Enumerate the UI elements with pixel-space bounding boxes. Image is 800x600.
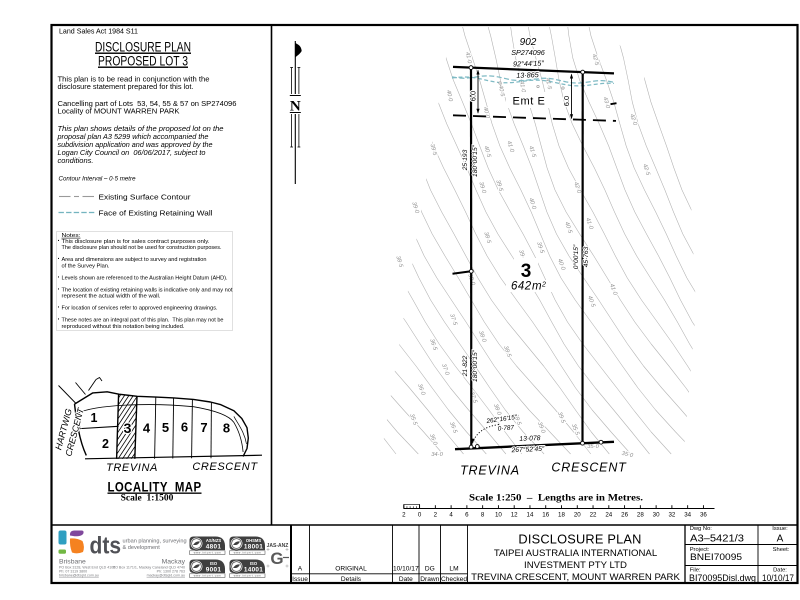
svg-text:10/10/17: 10/10/17 — [762, 573, 794, 584]
svg-text:36·5: 36·5 — [428, 338, 438, 352]
svg-text:35·0: 35·0 — [587, 444, 599, 450]
svg-text:Issue:: Issue: — [772, 526, 788, 532]
svg-text:Locality of MOUNT WARREN PARK: Locality of MOUNT WARREN PARK — [58, 109, 180, 116]
svg-text:ISO: ISO — [250, 561, 258, 566]
svg-text:·: · — [58, 317, 60, 324]
svg-text:39·5: 39·5 — [494, 179, 503, 193]
svg-text:10: 10 — [495, 512, 502, 519]
svg-text:32: 32 — [668, 512, 675, 519]
svg-text:mackay@dtsqld.com.au: mackay@dtsqld.com.au — [147, 574, 185, 578]
svg-text:2: 2 — [541, 282, 546, 289]
svg-text:25·193: 25·193 — [462, 149, 469, 171]
svg-text:28: 28 — [637, 512, 644, 519]
svg-text:642: 642 — [511, 281, 532, 293]
svg-text:38·5: 38·5 — [394, 255, 404, 269]
svg-text:Levels shown are referenced to: Levels shown are referenced to the Austr… — [62, 275, 228, 281]
svg-text:Notes:: Notes: — [62, 233, 81, 239]
svg-text:INVESTMENT PTY LTD: INVESTMENT PTY LTD — [524, 560, 627, 571]
svg-text:4: 4 — [449, 512, 453, 519]
svg-text:A: A — [298, 566, 303, 573]
svg-text:0·787: 0·787 — [497, 424, 514, 432]
svg-text:39·0: 39·0 — [536, 421, 546, 435]
svg-text:conditions.: conditions. — [58, 156, 94, 165]
svg-text:brisbane@dtsqld.com.au: brisbane@dtsqld.com.au — [59, 574, 99, 578]
svg-text:6: 6 — [465, 512, 469, 519]
svg-text:36·0: 36·0 — [428, 433, 438, 447]
svg-text:38·0: 38·0 — [492, 403, 502, 417]
svg-text:represent the actual width of: represent the actual width of the wall. — [62, 294, 161, 300]
svg-text:For location of services refer: For location of services refer to approv… — [62, 306, 218, 312]
svg-text:Existing Surface Contour: Existing Surface Contour — [99, 195, 192, 202]
svg-text:45·763: 45·763 — [583, 246, 590, 267]
svg-text:The location of existing retai: The location of existing retaining walls… — [62, 288, 233, 294]
svg-text:14: 14 — [527, 512, 534, 519]
svg-text:40·5: 40·5 — [586, 295, 596, 309]
svg-text:41·0: 41·0 — [608, 283, 618, 297]
svg-text:A3–5421/3: A3–5421/3 — [690, 534, 744, 545]
svg-text:AS/NZS: AS/NZS — [206, 538, 222, 543]
svg-text:8: 8 — [223, 421, 230, 436]
svg-text:Drawn: Drawn — [420, 576, 439, 583]
svg-text:39·0: 39·0 — [410, 201, 419, 215]
svg-text:12: 12 — [511, 512, 518, 519]
svg-text:40·5: 40·5 — [497, 85, 505, 98]
svg-text:2: 2 — [434, 512, 438, 519]
svg-text:37·0: 37·0 — [440, 363, 450, 377]
svg-text:38·5: 38·5 — [502, 345, 512, 359]
svg-text:0°00'15″: 0°00'15″ — [572, 244, 580, 269]
svg-text:This disclosure plan is for sa: This disclosure plan is for sales contra… — [62, 239, 210, 245]
svg-text:5: 5 — [162, 420, 169, 435]
svg-text:Scale 1:1500: Scale 1:1500 — [121, 494, 174, 504]
svg-text:TREVINA: TREVINA — [460, 464, 520, 478]
svg-text:41·0: 41·0 — [464, 51, 472, 64]
svg-text:41·5: 41·5 — [527, 145, 536, 159]
svg-text:BNEI70095: BNEI70095 — [690, 552, 742, 563]
svg-text:w w w . i n t c e r t . c o m: w w w . i n t c e r t . c o m — [234, 552, 261, 555]
svg-text:OHSMS: OHSMS — [246, 538, 262, 543]
svg-text:43·0: 43·0 — [602, 96, 611, 110]
svg-text:41·0: 41·0 — [584, 217, 594, 231]
svg-text:dts: dts — [90, 533, 122, 560]
svg-text:DG: DG — [425, 566, 435, 573]
svg-text:w w w . i n t c e r t . c o m: w w w . i n t c e r t . c o m — [194, 575, 221, 578]
svg-text:CRESCENT: CRESCENT — [551, 461, 627, 475]
svg-text:6.0: 6.0 — [469, 91, 478, 101]
svg-text:Date: Date — [399, 576, 413, 583]
svg-text:& development: & development — [123, 545, 161, 551]
svg-text:Details: Details — [341, 576, 362, 583]
svg-text:42·5: 42·5 — [641, 163, 651, 177]
svg-text:40·0: 40·0 — [556, 258, 566, 272]
svg-text:reproduced without this notati: reproduced without this notation being i… — [62, 324, 185, 330]
svg-text:6.0: 6.0 — [562, 96, 571, 106]
svg-text:21·822: 21·822 — [462, 355, 469, 377]
svg-text:of the Survey Plan.: of the Survey Plan. — [62, 263, 110, 269]
svg-text:A: A — [777, 534, 784, 545]
svg-text:w w w . i n t c e r t . c o m: w w w . i n t c e r t . c o m — [234, 575, 261, 578]
svg-text:41·0: 41·0 — [505, 140, 514, 154]
svg-text:26: 26 — [621, 512, 628, 519]
svg-text:2: 2 — [402, 512, 406, 519]
svg-text:Face of Existing Retaining Wal: Face of Existing Retaining Wall — [99, 211, 214, 218]
svg-text:BI70095Disl.dwg: BI70095Disl.dwg — [689, 573, 756, 584]
svg-text:40·0: 40·0 — [445, 89, 453, 102]
svg-text:Mackay: Mackay — [162, 559, 186, 566]
svg-text:36·5: 36·5 — [448, 421, 458, 435]
svg-text:Checked: Checked — [441, 576, 467, 583]
svg-text:Scale 1:250 – Lengths are in: Scale 1:250 – Lengths are in Metres. — [469, 493, 643, 503]
svg-text:w w w . i n t c e r t . c o m: w w w . i n t c e r t . c o m — [194, 552, 221, 555]
svg-text:39·5: 39·5 — [429, 143, 438, 157]
svg-text:40·0: 40·0 — [482, 106, 491, 119]
svg-text:9001: 9001 — [206, 566, 222, 573]
svg-text:Contour Interval – 0·5 metre: Contour Interval – 0·5 metre — [59, 176, 136, 183]
svg-text:Cancelling part of Lots 53, 5: Cancelling part of Lots 53, 54, 55 & 57 … — [58, 101, 237, 108]
svg-text:180°00'15″: 180°00'15″ — [471, 349, 479, 382]
svg-text:Dwg No:: Dwg No: — [690, 526, 713, 532]
svg-text:40·0: 40·0 — [527, 197, 537, 211]
svg-text:·: · — [58, 274, 60, 281]
svg-text:18: 18 — [558, 512, 565, 519]
svg-text:N: N — [290, 99, 301, 115]
svg-text:13·078: 13·078 — [519, 435, 541, 443]
svg-text:DISCLOSURE PLAN: DISCLOSURE PLAN — [518, 532, 641, 547]
svg-text:42·0: 42·0 — [572, 181, 582, 195]
svg-text:Land Sales Act 1984 S11: Land Sales Act 1984 S11 — [59, 27, 138, 36]
svg-text:CRESCENT: CRESCENT — [192, 461, 258, 473]
svg-text:7: 7 — [200, 420, 207, 435]
svg-text:Brisbane: Brisbane — [59, 559, 86, 566]
svg-text:18001: 18001 — [244, 543, 263, 550]
svg-text:·: · — [58, 238, 60, 245]
svg-text:urban planning, surveying: urban planning, surveying — [123, 539, 187, 545]
svg-text:1: 1 — [91, 411, 98, 425]
svg-text:40·5: 40·5 — [563, 221, 573, 235]
svg-text:180°00'15″: 180°00'15″ — [471, 144, 479, 177]
svg-text:TAIPEI AUSTRALIA INTERNATIONAL: TAIPEI AUSTRALIA INTERNATIONAL — [494, 548, 658, 559]
svg-text:34·0: 34·0 — [431, 452, 443, 458]
svg-text:8: 8 — [481, 512, 485, 519]
svg-text:35·5: 35·5 — [408, 413, 418, 427]
svg-text:3: 3 — [124, 420, 132, 436]
svg-text:G: G — [270, 549, 283, 568]
svg-text:92°44'15″: 92°44'15″ — [513, 58, 545, 68]
svg-text:Sheet:: Sheet: — [773, 547, 790, 553]
svg-text:20: 20 — [574, 512, 581, 519]
svg-text:42·5: 42·5 — [591, 53, 600, 67]
svg-text:902: 902 — [520, 37, 537, 48]
svg-text:Issue: Issue — [292, 576, 308, 583]
svg-text:4: 4 — [143, 421, 151, 436]
svg-text:41·5: 41·5 — [544, 77, 552, 90]
svg-text:disclosure statement prepared: disclosure statement prepared for this l… — [58, 84, 194, 91]
svg-text:2: 2 — [102, 437, 109, 451]
svg-text:41·0: 41·0 — [518, 81, 526, 94]
svg-text:TREVINA: TREVINA — [106, 462, 158, 474]
svg-text:262°16'15″: 262°16'15″ — [485, 413, 518, 425]
svg-text:39·0: 39·0 — [477, 181, 486, 195]
svg-text:36·0: 36·0 — [416, 383, 426, 397]
svg-text:13·865: 13·865 — [516, 70, 540, 80]
svg-text:LOCALITY MAP: LOCALITY MAP — [108, 480, 202, 495]
svg-text:The disclosure plan should not: The disclosure plan should not be used f… — [62, 245, 222, 251]
svg-text:3: 3 — [521, 261, 532, 282]
svg-text:This plan is to be read in con: This plan is to be read in conjunction w… — [58, 77, 210, 84]
svg-text:Emt E: Emt E — [513, 96, 546, 108]
svg-text:10/10/17: 10/10/17 — [393, 566, 419, 573]
svg-text:30: 30 — [653, 512, 660, 519]
svg-text:·: · — [58, 305, 60, 312]
svg-text:LM: LM — [449, 566, 458, 573]
svg-text:SP274096: SP274096 — [511, 48, 545, 57]
svg-text:34: 34 — [684, 512, 691, 519]
svg-text:24: 24 — [605, 512, 612, 519]
svg-text:16: 16 — [542, 512, 549, 519]
svg-text:38·5: 38·5 — [482, 231, 492, 245]
svg-text:39·5: 39·5 — [556, 411, 566, 425]
svg-text:·: · — [58, 256, 60, 263]
svg-text:35·0: 35·0 — [621, 451, 634, 459]
svg-text:36: 36 — [700, 512, 707, 519]
svg-text:22: 22 — [590, 512, 597, 519]
svg-text:These notes are an integral pa: These notes are an integral part of this… — [62, 318, 225, 324]
svg-text:14001: 14001 — [244, 566, 263, 573]
svg-text:ORIGINAL: ORIGINAL — [335, 566, 367, 573]
svg-text:ISO: ISO — [210, 561, 218, 566]
svg-text:·: · — [58, 287, 60, 294]
svg-text:Area and dimensions are subjec: Area and dimensions are subject to surve… — [62, 257, 207, 263]
svg-text:39·5: 39·5 — [535, 241, 545, 255]
svg-text:35·5: 35·5 — [570, 423, 580, 437]
svg-text:0: 0 — [418, 512, 422, 519]
svg-text:4801: 4801 — [206, 543, 222, 550]
svg-text:6: 6 — [181, 420, 188, 435]
svg-text:37·5: 37·5 — [448, 313, 458, 327]
svg-text:TREVINA CRESCENT, MOUNT WARREN: TREVINA CRESCENT, MOUNT WARREN PARK — [471, 572, 680, 583]
svg-text:m: m — [532, 281, 542, 293]
svg-text:267°52'45″: 267°52'45″ — [510, 445, 545, 454]
svg-text:42·0: 42·0 — [628, 113, 638, 127]
svg-text:PROPOSED LOT 3: PROPOSED LOT 3 — [98, 54, 188, 70]
